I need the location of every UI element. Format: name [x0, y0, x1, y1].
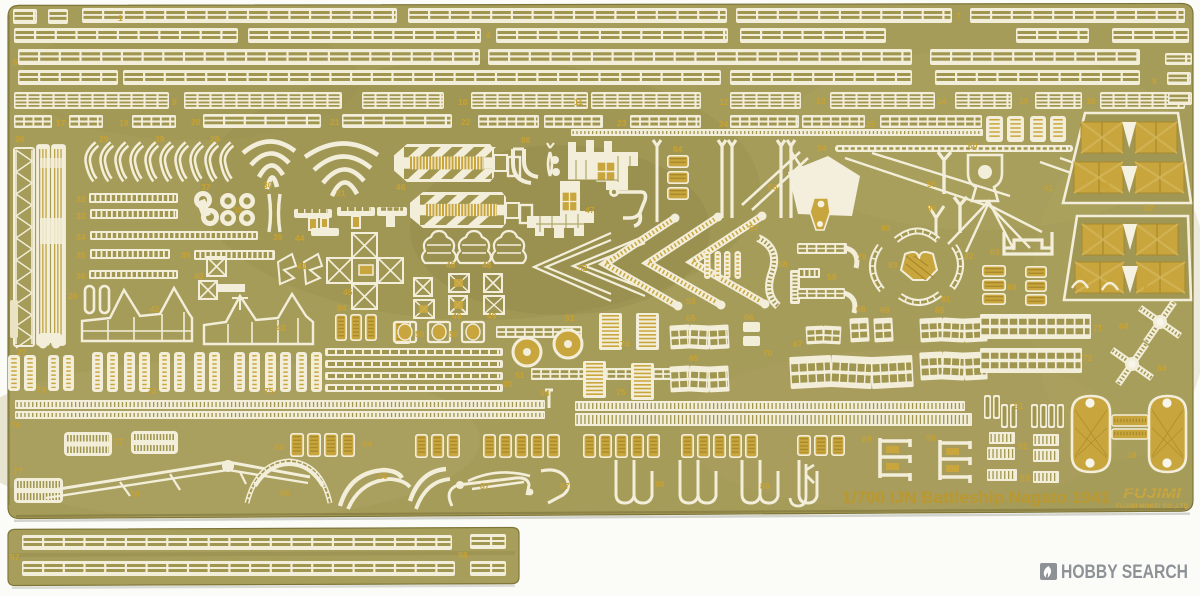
svg-text:65: 65: [686, 313, 696, 323]
svg-text:56: 56: [768, 182, 778, 192]
svg-text:30: 30: [263, 180, 273, 190]
svg-text:85: 85: [503, 379, 513, 389]
svg-text:88: 88: [655, 479, 665, 489]
svg-text:6: 6: [13, 57, 18, 67]
svg-text:77: 77: [13, 466, 23, 476]
svg-text:11: 11: [574, 97, 583, 107]
svg-text:59: 59: [827, 272, 837, 282]
svg-text:HOBBY SEARCH: HOBBY SEARCH: [1061, 562, 1188, 583]
svg-text:33: 33: [76, 211, 86, 221]
svg-text:18: 18: [1127, 450, 1137, 460]
svg-text:32: 32: [76, 194, 86, 204]
svg-text:52: 52: [578, 263, 588, 273]
svg-text:65: 65: [935, 305, 945, 315]
svg-text:FUJIMI MOKEI CO.,LTD.: FUJIMI MOKEI CO.,LTD.: [1116, 504, 1190, 510]
svg-text:57: 57: [749, 223, 759, 233]
svg-text:98: 98: [458, 550, 468, 560]
svg-text:89: 89: [862, 434, 872, 444]
svg-text:21: 21: [330, 117, 340, 127]
svg-text:17: 17: [56, 118, 66, 128]
svg-text:51: 51: [515, 370, 525, 380]
svg-text:84: 84: [337, 303, 347, 313]
svg-text:29: 29: [210, 134, 220, 144]
svg-text:1: 1: [118, 13, 123, 23]
svg-text:1/700 IJN Battleship Nagato 19: 1/700 IJN Battleship Nagato 1941: [842, 489, 1110, 507]
svg-text:14: 14: [937, 96, 947, 106]
svg-text:35: 35: [76, 250, 86, 260]
svg-text:87: 87: [560, 481, 570, 491]
svg-text:83: 83: [888, 260, 898, 270]
svg-text:13: 13: [816, 96, 826, 106]
svg-text:48: 48: [446, 260, 456, 270]
svg-text:12: 12: [719, 97, 729, 107]
svg-text:54: 54: [817, 143, 827, 153]
svg-text:62: 62: [1144, 283, 1154, 293]
svg-text:36: 36: [76, 271, 86, 281]
svg-text:63: 63: [990, 247, 1000, 257]
svg-text:4: 4: [486, 30, 491, 40]
svg-text:88: 88: [521, 135, 531, 145]
svg-text:29: 29: [99, 134, 109, 144]
svg-text:86: 86: [280, 488, 290, 498]
svg-text:37: 37: [201, 182, 211, 192]
svg-text:68: 68: [856, 304, 866, 314]
svg-text:82: 82: [964, 251, 974, 261]
svg-text:74: 74: [147, 386, 157, 396]
svg-text:78: 78: [130, 489, 140, 499]
svg-text:81: 81: [941, 294, 951, 304]
svg-text:38: 38: [233, 205, 243, 215]
svg-text:44: 44: [295, 233, 305, 243]
svg-text:79: 79: [857, 252, 867, 262]
svg-text:23: 23: [617, 118, 627, 128]
svg-text:62: 62: [1144, 203, 1154, 213]
svg-text:31: 31: [336, 188, 346, 198]
svg-text:67: 67: [793, 339, 803, 349]
svg-text:94: 94: [540, 388, 550, 398]
svg-text:35: 35: [181, 250, 191, 260]
svg-text:71: 71: [1093, 323, 1103, 333]
svg-text:22: 22: [461, 117, 471, 127]
svg-text:19: 19: [119, 118, 129, 128]
svg-text:75: 75: [264, 386, 274, 396]
svg-text:50: 50: [449, 329, 459, 339]
svg-text:53: 53: [686, 296, 696, 306]
svg-text:15: 15: [1019, 96, 1029, 106]
svg-text:75: 75: [616, 387, 626, 397]
svg-text:84: 84: [274, 442, 284, 452]
svg-text:20: 20: [191, 117, 201, 127]
svg-text:49: 49: [452, 311, 462, 321]
svg-text:29: 29: [155, 134, 165, 144]
svg-text:66: 66: [744, 312, 754, 322]
svg-text:92: 92: [1018, 441, 1028, 451]
svg-text:84: 84: [362, 439, 372, 449]
svg-text:90: 90: [926, 433, 936, 443]
svg-text:46: 46: [396, 182, 406, 192]
svg-text:97: 97: [10, 552, 20, 562]
svg-text:56: 56: [1100, 180, 1110, 190]
svg-text:74: 74: [620, 339, 630, 349]
svg-text:93: 93: [1020, 473, 1030, 483]
svg-text:51: 51: [565, 313, 575, 323]
svg-text:64: 64: [1119, 321, 1129, 331]
svg-text:96: 96: [927, 203, 937, 213]
svg-text:49: 49: [487, 311, 497, 321]
svg-text:60: 60: [968, 141, 978, 151]
svg-text:45: 45: [343, 287, 353, 297]
svg-text:61: 61: [1044, 183, 1054, 193]
svg-text:42: 42: [150, 304, 160, 314]
svg-text:26: 26: [15, 134, 25, 144]
svg-text:50: 50: [415, 329, 425, 339]
svg-text:73: 73: [36, 385, 46, 395]
svg-text:87: 87: [480, 481, 490, 491]
svg-text:69: 69: [880, 305, 890, 315]
svg-text:64: 64: [1157, 363, 1167, 373]
svg-text:10: 10: [458, 97, 468, 107]
svg-text:7: 7: [956, 11, 961, 21]
svg-text:58: 58: [778, 259, 788, 269]
svg-text:39: 39: [273, 232, 283, 242]
svg-text:16: 16: [1086, 96, 1096, 106]
svg-text:8: 8: [1152, 76, 1157, 86]
svg-text:24: 24: [719, 119, 729, 129]
svg-text:27: 27: [17, 347, 27, 357]
svg-text:34: 34: [76, 232, 86, 242]
svg-text:70: 70: [763, 348, 773, 358]
svg-text:88: 88: [760, 481, 770, 491]
svg-text:40: 40: [194, 271, 204, 281]
svg-text:72: 72: [1083, 353, 1093, 363]
svg-text:43: 43: [276, 323, 286, 333]
svg-text:84: 84: [1007, 282, 1017, 292]
svg-text:9: 9: [172, 97, 177, 107]
svg-text:91: 91: [1014, 401, 1024, 411]
svg-text:41: 41: [297, 261, 307, 271]
svg-text:84: 84: [673, 144, 683, 154]
svg-text:65: 65: [689, 353, 699, 363]
svg-text:48: 48: [482, 260, 492, 270]
svg-text:76: 76: [11, 420, 21, 430]
svg-text:28: 28: [68, 291, 78, 301]
svg-text:25: 25: [866, 119, 876, 129]
svg-text:77: 77: [114, 437, 124, 447]
svg-text:80: 80: [881, 223, 891, 233]
svg-text:86: 86: [378, 471, 388, 481]
svg-text:55: 55: [927, 179, 937, 189]
svg-text:47: 47: [585, 205, 595, 215]
